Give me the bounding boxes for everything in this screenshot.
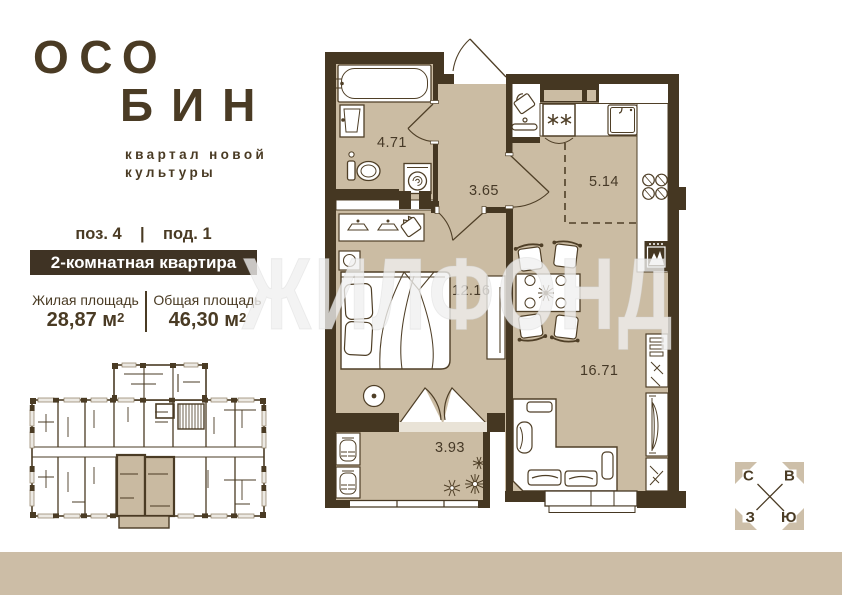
svg-text:3.65: 3.65: [469, 183, 499, 199]
svg-text:5.14: 5.14: [589, 174, 619, 190]
svg-text:16.71: 16.71: [580, 363, 618, 379]
svg-text:З: З: [746, 509, 755, 526]
svg-text:4.71: 4.71: [377, 135, 407, 151]
svg-text:С: С: [743, 468, 754, 485]
svg-text:В: В: [784, 468, 795, 485]
svg-text:3.93: 3.93: [435, 440, 465, 456]
svg-text:Ю: Ю: [781, 509, 796, 526]
